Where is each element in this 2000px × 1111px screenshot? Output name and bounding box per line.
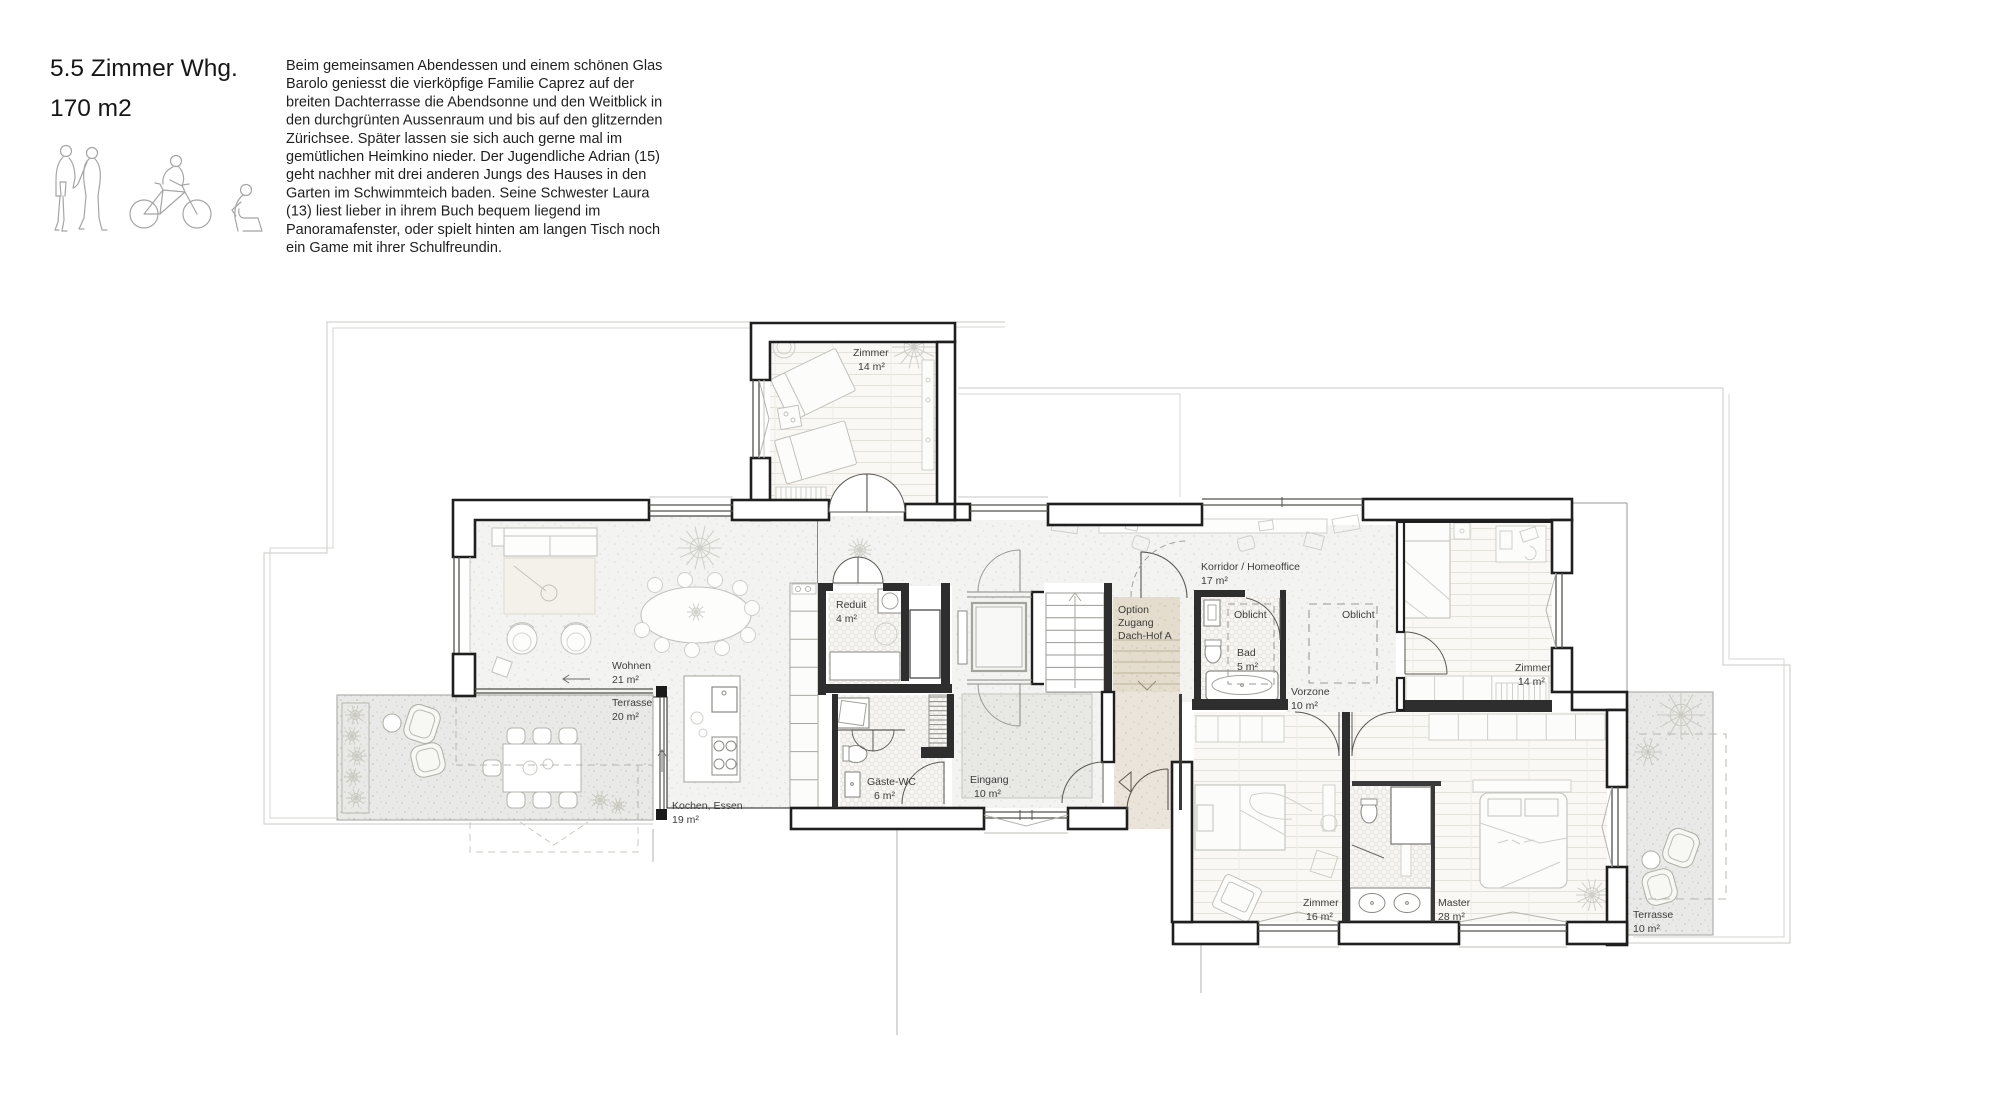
svg-text:Terrasse: Terrasse [612, 697, 652, 709]
svg-text:ein Game mit ihrer Schulfreund: ein Game mit ihrer Schulfreundin. [286, 240, 502, 256]
svg-text:Zimmer: Zimmer [853, 347, 889, 359]
svg-text:Zimmer: Zimmer [1515, 662, 1551, 674]
svg-text:breiten Dachterrasse die Abend: breiten Dachterrasse die Abendsonne und … [286, 94, 662, 110]
svg-text:4 m²: 4 m² [836, 613, 858, 625]
svg-text:10 m²: 10 m² [1291, 700, 1318, 712]
svg-text:gemütlichen Heimkino nieder. D: gemütlichen Heimkino nieder. Der Jugendl… [286, 149, 660, 165]
svg-text:Vorzone: Vorzone [1291, 686, 1330, 698]
svg-text:Panoramafenster, oder spielt h: Panoramafenster, oder spielt hinten am l… [286, 222, 660, 238]
svg-text:17 m²: 17 m² [1201, 575, 1228, 587]
svg-text:Gäste-WC: Gäste-WC [867, 776, 916, 788]
svg-text:Wohnen: Wohnen [612, 660, 651, 672]
svg-text:Master: Master [1438, 897, 1471, 909]
svg-text:Zugang: Zugang [1118, 617, 1154, 629]
svg-text:14 m²: 14 m² [858, 361, 885, 373]
svg-text:Terrasse: Terrasse [1633, 909, 1673, 921]
svg-text:Eingang: Eingang [970, 774, 1009, 786]
svg-text:Dach-Hof A: Dach-Hof A [1118, 630, 1172, 642]
svg-text:Option: Option [1118, 604, 1149, 616]
svg-text:Korridor / Homeoffice: Korridor / Homeoffice [1201, 561, 1300, 573]
svg-text:5.5 Zimmer Whg.: 5.5 Zimmer Whg. [50, 55, 238, 82]
svg-text:Beim gemeinsamen Abendessen un: Beim gemeinsamen Abendessen und einem sc… [286, 58, 662, 74]
svg-text:Kochen, Essen: Kochen, Essen [672, 800, 743, 812]
svg-text:16 m²: 16 m² [1306, 911, 1333, 923]
svg-text:10 m²: 10 m² [1633, 923, 1660, 935]
svg-text:19 m²: 19 m² [672, 814, 699, 826]
svg-text:5 m²: 5 m² [1237, 661, 1259, 673]
svg-text:21 m²: 21 m² [612, 674, 639, 686]
svg-text:Bad: Bad [1237, 647, 1256, 659]
svg-text:170 m2: 170 m2 [50, 95, 132, 122]
svg-text:14 m²: 14 m² [1518, 676, 1545, 688]
svg-text:(13) liest lieber in ihrem Buc: (13) liest lieber in ihrem Buch bequem l… [286, 204, 600, 220]
svg-text:Oblicht: Oblicht [1234, 609, 1267, 621]
svg-text:10 m²: 10 m² [974, 788, 1001, 800]
svg-text:Barolo geniesst die vierköpfig: Barolo geniesst die vierköpfige Familie … [286, 76, 634, 92]
svg-text:den durchgrünten Aussenraum un: den durchgrünten Aussenraum und bis auf … [286, 113, 662, 129]
svg-text:Zimmer: Zimmer [1303, 897, 1339, 909]
svg-text:28 m²: 28 m² [1438, 911, 1465, 923]
svg-text:geht nachher mit drei anderen: geht nachher mit drei anderen Jungs des … [286, 167, 646, 183]
svg-text:Zürichsee. Später lassen sie s: Zürichsee. Später lassen sie sich auch g… [286, 131, 622, 147]
svg-text:Oblicht: Oblicht [1342, 609, 1375, 621]
svg-text:Reduit: Reduit [836, 599, 866, 611]
svg-text:6 m²: 6 m² [874, 790, 896, 802]
svg-text:Garten im Schwimmteich baden.: Garten im Schwimmteich baden. Seine Schw… [286, 185, 650, 201]
svg-text:20 m²: 20 m² [612, 711, 639, 723]
